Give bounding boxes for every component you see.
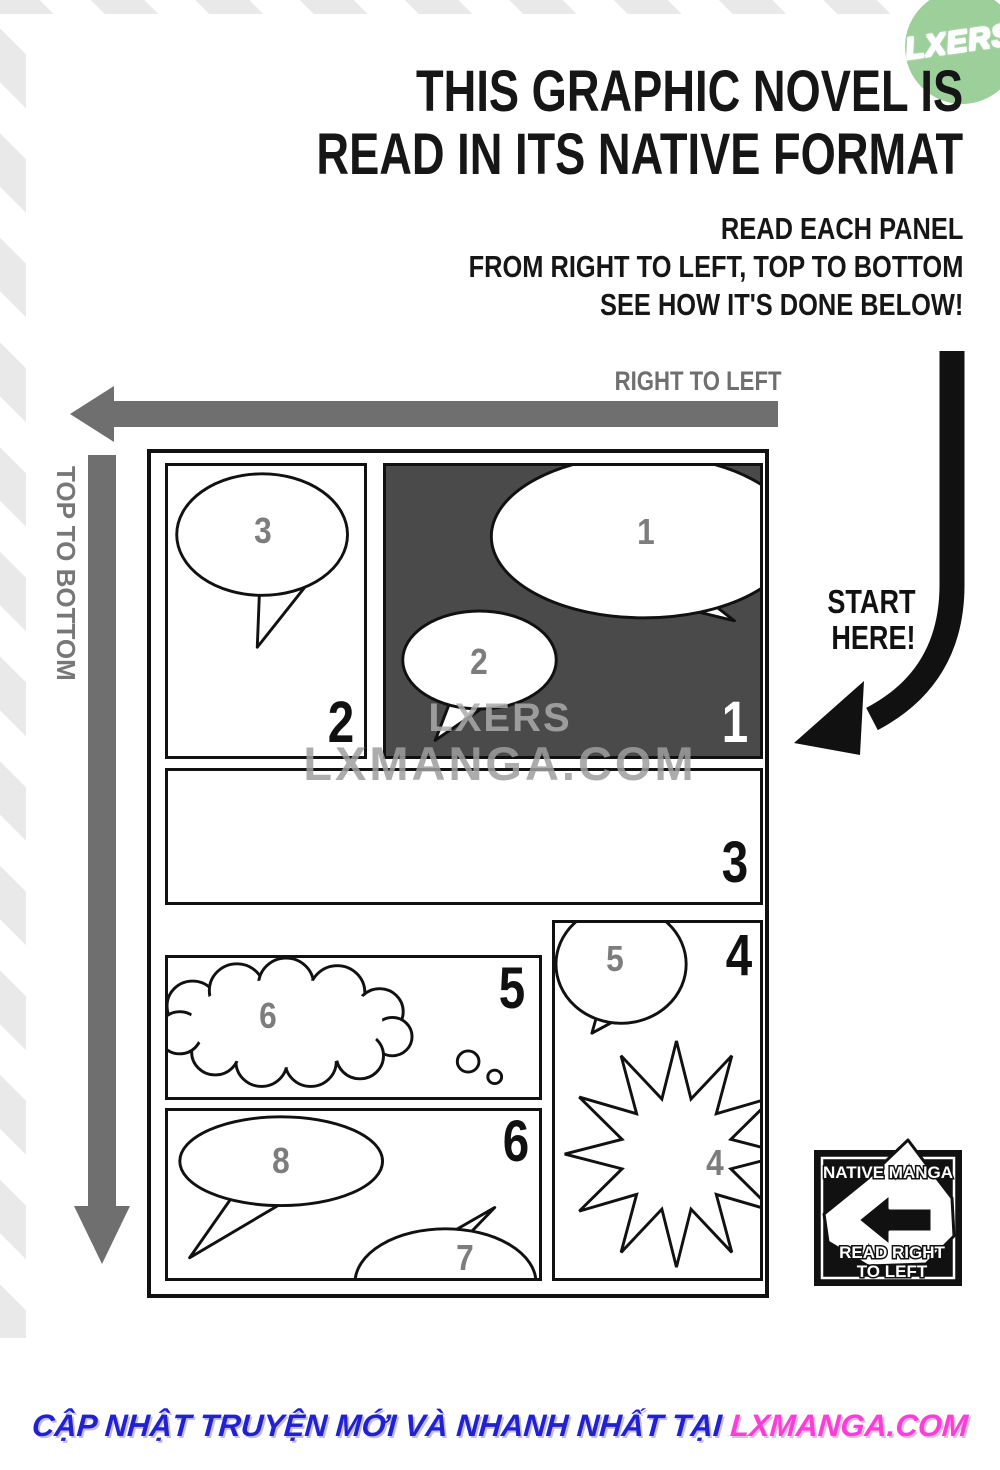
bubble-number-2: 2 [470, 644, 488, 680]
top-to-bottom-label: TOP TO BOTTOM [50, 466, 81, 656]
speech-bubbles-graphic [168, 1111, 539, 1278]
top-to-bottom-arrow-head-icon [74, 1206, 130, 1264]
comic-page: 3 2 1 2 1 3 [147, 449, 769, 1298]
badge-bottom-line1: READ RIGHT [839, 1243, 945, 1262]
panel-6: 8 7 6 [165, 1108, 542, 1281]
bubble-number-6: 6 [259, 998, 277, 1034]
top-to-bottom-arrow [88, 455, 116, 1208]
start-here-arrow-icon [780, 345, 980, 755]
page-title: THIS GRAPHIC NOVEL IS READ IN ITS NATIVE… [134, 60, 963, 186]
bubble-number-4: 4 [706, 1145, 724, 1181]
panel-number-4: 4 [726, 927, 752, 985]
panel-number-6: 6 [503, 1113, 529, 1171]
footer-banner: CẬP NHẬT TRUYỆN MỚI VÀ NHANH NHẤT TẠI LX… [0, 1408, 1000, 1444]
bubble-number-7: 7 [456, 1240, 474, 1276]
bubble-number-3: 3 [254, 513, 272, 549]
hazard-stripes-top [0, 0, 1000, 14]
thought-bubble-graphic [168, 958, 539, 1097]
bubble-number-8: 8 [272, 1143, 290, 1179]
bubble-number-1: 1 [637, 514, 655, 550]
badge-title: NATIVE MANGA [823, 1163, 953, 1182]
panel-4: 5 4 4 [552, 920, 763, 1281]
badge-bottom-line2: TO LEFT [857, 1262, 928, 1281]
panel-number-3: 3 [722, 834, 748, 892]
page-subtitle: READ EACH PANEL FROM RIGHT TO LEFT, TOP … [360, 210, 963, 324]
manga-instruction-page: LXERS THIS GRAPHIC NOVEL IS READ IN ITS … [0, 0, 1000, 1470]
footer-site-name: LXMANGA.COM [729, 1408, 969, 1443]
panel-5: 6 5 [165, 955, 542, 1100]
subtitle-line3: SEE HOW IT'S DONE BELOW! [468, 286, 963, 324]
page-title-line1: THIS GRAPHIC NOVEL IS [316, 60, 963, 123]
right-to-left-label: RIGHT TO LEFT [614, 366, 781, 397]
subtitle-line2: FROM RIGHT TO LEFT, TOP TO BOTTOM [468, 248, 963, 286]
bubble-number-5: 5 [606, 941, 624, 977]
watermark-line2: LXMANGA.COM [0, 736, 1000, 791]
watermark-line1: LXERS [0, 696, 1000, 741]
right-to-left-arrow [112, 401, 778, 427]
footer-message: CẬP NHẬT TRUYỆN MỚI VÀ NHANH NHẤT TẠI [31, 1408, 723, 1443]
page-title-line2: READ IN ITS NATIVE FORMAT [316, 123, 963, 186]
hazard-stripes-left [0, 0, 26, 1338]
panel-number-5: 5 [499, 960, 525, 1018]
subtitle-line1: READ EACH PANEL [468, 210, 963, 248]
native-manga-badge: NATIVE MANGA READ RIGHT TO LEFT [808, 1136, 968, 1296]
right-to-left-arrow-head-icon [70, 386, 114, 442]
